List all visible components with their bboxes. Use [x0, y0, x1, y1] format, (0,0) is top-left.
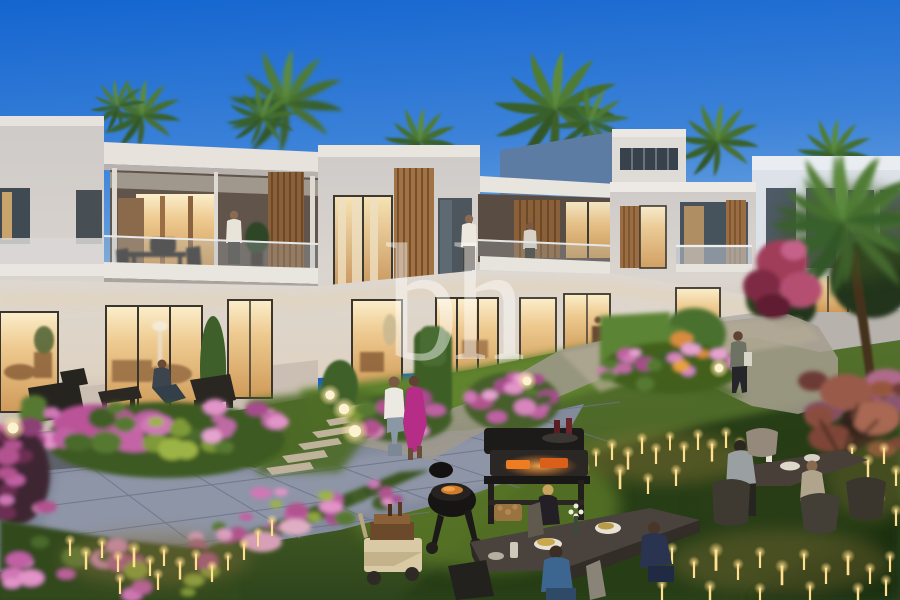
- svg-text:bh: bh: [386, 210, 523, 396]
